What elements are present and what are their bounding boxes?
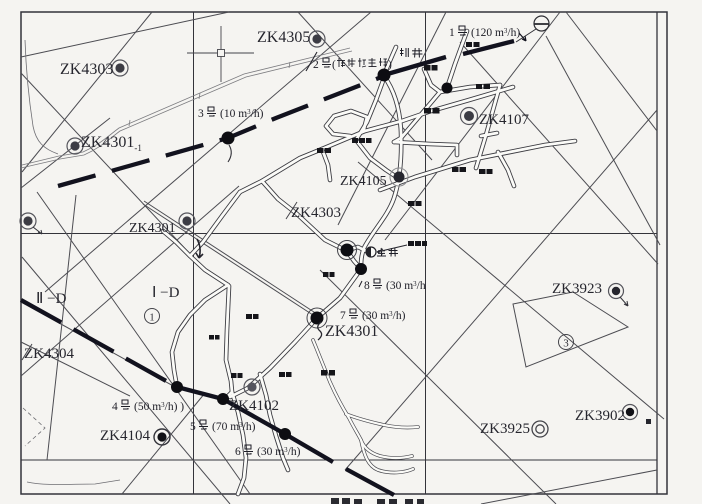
svg-text:(30 m3/h): (30 m3/h) (362, 310, 406, 322)
svg-text:ZK4301: ZK4301 (325, 323, 378, 340)
svg-text:(120 m3/h): (120 m3/h) (471, 27, 520, 39)
svg-text:3: 3 (563, 338, 569, 350)
svg-text:4: 4 (112, 401, 118, 413)
svg-text:(30 m3/h: (30 m3/h (386, 280, 426, 292)
svg-text:5: 5 (190, 421, 196, 433)
svg-text:1: 1 (449, 27, 455, 39)
svg-text:ZK4301-1: ZK4301-1 (81, 134, 142, 153)
svg-text:ZK4102: ZK4102 (229, 398, 279, 414)
svg-text:3: 3 (198, 108, 204, 120)
svg-text:(50 m3/h) ): (50 m3/h) ) (134, 401, 184, 413)
svg-text:ZK3923: ZK3923 (552, 281, 602, 297)
svg-text:ZK4104: ZK4104 (100, 428, 150, 444)
svg-text:Ⅱ −D: Ⅱ −D (36, 291, 67, 307)
svg-text:(: ( (332, 59, 336, 71)
svg-text:(30 m3/h): (30 m3/h) (257, 446, 301, 458)
svg-text:7: 7 (340, 310, 346, 322)
svg-text:Ⅰ −D: Ⅰ −D (152, 285, 180, 301)
svg-text:ZK4301: ZK4301 (129, 221, 176, 236)
svg-text:8: 8 (364, 280, 370, 292)
svg-text:ZK4304: ZK4304 (24, 346, 74, 362)
svg-text:): ) (388, 59, 392, 71)
svg-text:ZK4105: ZK4105 (340, 174, 387, 189)
svg-text:ZK4303: ZK4303 (291, 205, 341, 221)
svg-text:ZK4305: ZK4305 (257, 29, 310, 46)
svg-text:6: 6 (235, 446, 241, 458)
svg-text:ZK3902: ZK3902 (575, 408, 625, 424)
svg-text:ZK3925: ZK3925 (480, 421, 530, 437)
svg-text:(10 m3/h): (10 m3/h) (220, 108, 264, 120)
svg-text:1: 1 (149, 312, 155, 324)
svg-text:2: 2 (313, 59, 319, 71)
svg-text:(70 m3/h): (70 m3/h) (212, 421, 256, 433)
svg-text:ZK4303: ZK4303 (60, 61, 113, 78)
svg-text:ZK4107: ZK4107 (479, 112, 529, 128)
